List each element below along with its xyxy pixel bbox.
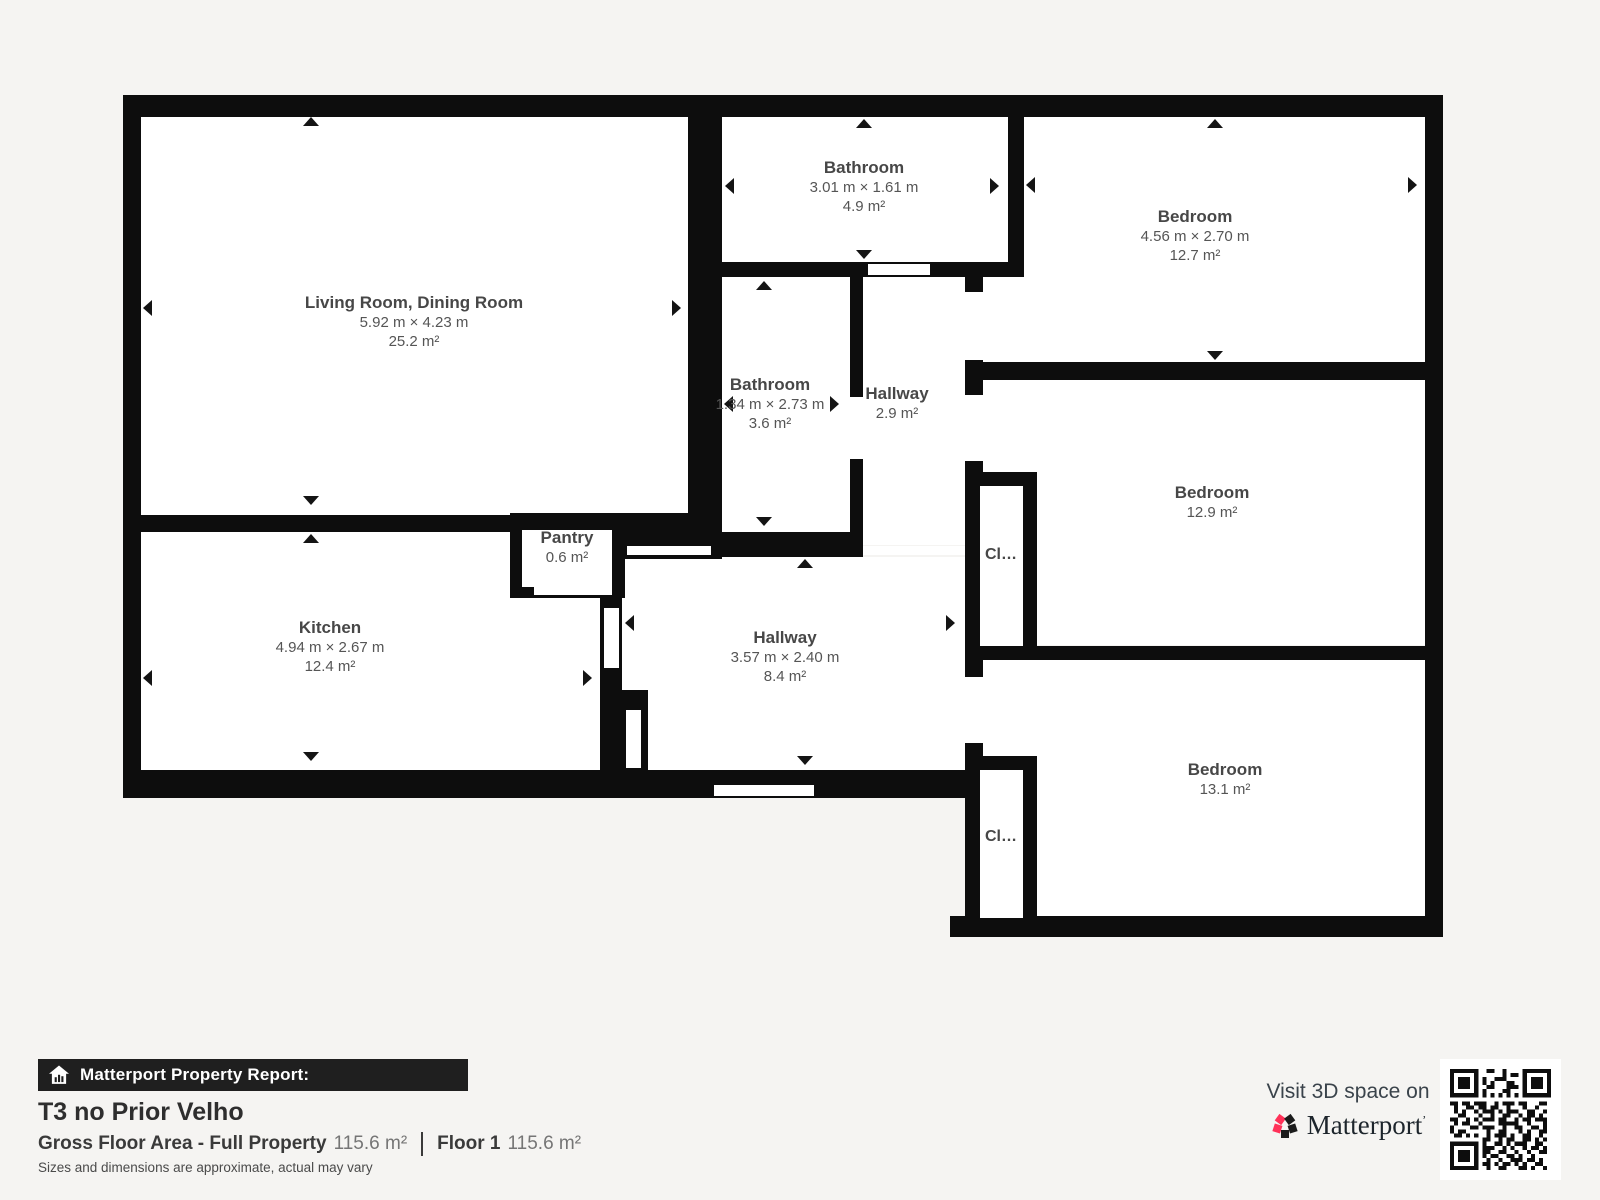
wall <box>722 532 850 557</box>
room-dims: 4.56 m × 2.70 m <box>1045 227 1345 246</box>
report-header-bar: Matterport Property Report: <box>38 1059 468 1091</box>
measure-arrow-up <box>303 534 319 543</box>
measure-arrow-left <box>625 615 634 631</box>
stats-divider <box>421 1132 423 1156</box>
measure-arrow-up <box>856 119 872 128</box>
room-dims: 5.92 m × 4.23 m <box>264 313 564 332</box>
door-opening <box>534 586 612 595</box>
room-area: 2.9 m² <box>839 404 955 423</box>
room-name: Living Room, Dining Room <box>264 292 564 313</box>
room-label-kitchen: Kitchen 4.94 m × 2.67 m 12.4 m² <box>180 617 480 676</box>
room-area: 12.7 m² <box>1045 246 1345 265</box>
trademark-tick: ʼ <box>1422 1113 1426 1127</box>
measure-arrow-down <box>1207 351 1223 360</box>
room-dims: 3.01 m × 1.61 m <box>714 178 1014 197</box>
door-opening <box>868 264 930 275</box>
room-area: 25.2 m² <box>264 332 564 351</box>
room-name: Pantry <box>508 527 626 548</box>
door-opening <box>627 546 711 555</box>
measure-arrow-right <box>946 615 955 631</box>
matterport-logo: Matterportʼ <box>1238 1110 1458 1141</box>
room-dims: 3.57 m × 2.40 m <box>635 648 935 667</box>
room-area: 12.4 m² <box>180 657 480 676</box>
measure-arrow-down <box>856 250 872 259</box>
wall <box>700 262 1022 277</box>
room-dims: 4.94 m × 2.67 m <box>180 638 480 657</box>
report-label: Matterport Property Report: <box>80 1065 309 1085</box>
room-label-closet-bottom: Cl… <box>970 828 1032 846</box>
measure-arrow-right <box>1408 177 1417 193</box>
matterport-wordmark: Matterportʼ <box>1307 1110 1426 1141</box>
measure-arrow-down <box>303 496 319 505</box>
room-area: 13.1 m² <box>1075 780 1375 799</box>
room-area: 8.4 m² <box>635 667 935 686</box>
floor-label: Floor 1 <box>437 1133 500 1155</box>
room-area: 4.9 m² <box>714 197 1014 216</box>
room-label-hallway-main: Hallway 3.57 m × 2.40 m 8.4 m² <box>635 627 935 686</box>
room-label-bedroom-mid-right: Bedroom 12.9 m² <box>1062 482 1362 522</box>
room-label-living: Living Room, Dining Room 5.92 m × 4.23 m… <box>264 292 564 351</box>
room-label-bedroom-top-right: Bedroom 4.56 m × 2.70 m 12.7 m² <box>1045 206 1345 265</box>
door-opening <box>626 710 641 768</box>
room-area: 12.9 m² <box>1062 503 1362 522</box>
entrance-door-opening <box>714 785 814 796</box>
visit-3d-space-text: Visit 3D space on <box>1238 1080 1458 1104</box>
room-name: Bedroom <box>1062 482 1362 503</box>
measure-arrow-down <box>797 756 813 765</box>
measure-arrow-up <box>756 281 772 290</box>
disclaimer-text: Sizes and dimensions are approximate, ac… <box>38 1160 373 1175</box>
door-opening <box>965 395 983 461</box>
gross-floor-area-label: Gross Floor Area - Full Property <box>38 1133 327 1155</box>
floor-area-stats: Gross Floor Area - Full Property 115.6 m… <box>38 1132 581 1156</box>
room-name: Kitchen <box>180 617 480 638</box>
house-icon <box>49 1065 69 1085</box>
qr-code <box>1440 1059 1561 1180</box>
wall <box>1425 95 1443 937</box>
floor-value: 115.6 m² <box>508 1133 582 1155</box>
room-name: Bathroom <box>714 157 1014 178</box>
floorplan-report-page: { "colors": { "background": "#f5f4f2", "… <box>0 0 1600 1200</box>
door-opening <box>965 677 983 743</box>
room-name: Hallway <box>635 627 935 648</box>
matterport-pinwheel-icon <box>1270 1111 1300 1141</box>
measure-arrow-up <box>797 559 813 568</box>
room-name: Hallway <box>839 383 955 404</box>
room-label-pantry: Pantry 0.6 m² <box>508 527 626 567</box>
wall <box>123 770 985 798</box>
room-name: Bedroom <box>1075 759 1375 780</box>
wall <box>123 95 141 798</box>
room-label-closet-mid: Cl… <box>970 546 1032 564</box>
room-label-bedroom-bottom-right: Bedroom 13.1 m² <box>1075 759 1375 799</box>
door-opening <box>863 546 965 555</box>
room-label-bathroom-top: Bathroom 3.01 m × 1.61 m 4.9 m² <box>714 157 1014 216</box>
room-bedroom-top-right-notch <box>983 277 1022 362</box>
room-closet-mid <box>980 486 1023 646</box>
gross-floor-area-value: 115.6 m² <box>334 1133 408 1155</box>
room-name: Bedroom <box>1045 206 1345 227</box>
qr-code-pattern <box>1450 1069 1551 1170</box>
wall <box>123 95 1443 117</box>
room-area: 0.6 m² <box>508 548 626 567</box>
measure-arrow-down <box>756 517 772 526</box>
measure-arrow-up <box>303 117 319 126</box>
measure-arrow-up <box>1207 119 1223 128</box>
measure-arrow-right <box>583 670 592 686</box>
room-label-hallway-small: Hallway 2.9 m² <box>839 383 955 423</box>
measure-arrow-right <box>672 300 681 316</box>
measure-arrow-left <box>143 670 152 686</box>
measure-arrow-left <box>1026 177 1035 193</box>
measure-arrow-down <box>303 752 319 761</box>
measure-arrow-left <box>143 300 152 316</box>
property-title: T3 no Prior Velho <box>38 1098 244 1127</box>
wall <box>965 362 1443 380</box>
door-opening <box>604 608 619 668</box>
door-opening <box>965 292 983 360</box>
